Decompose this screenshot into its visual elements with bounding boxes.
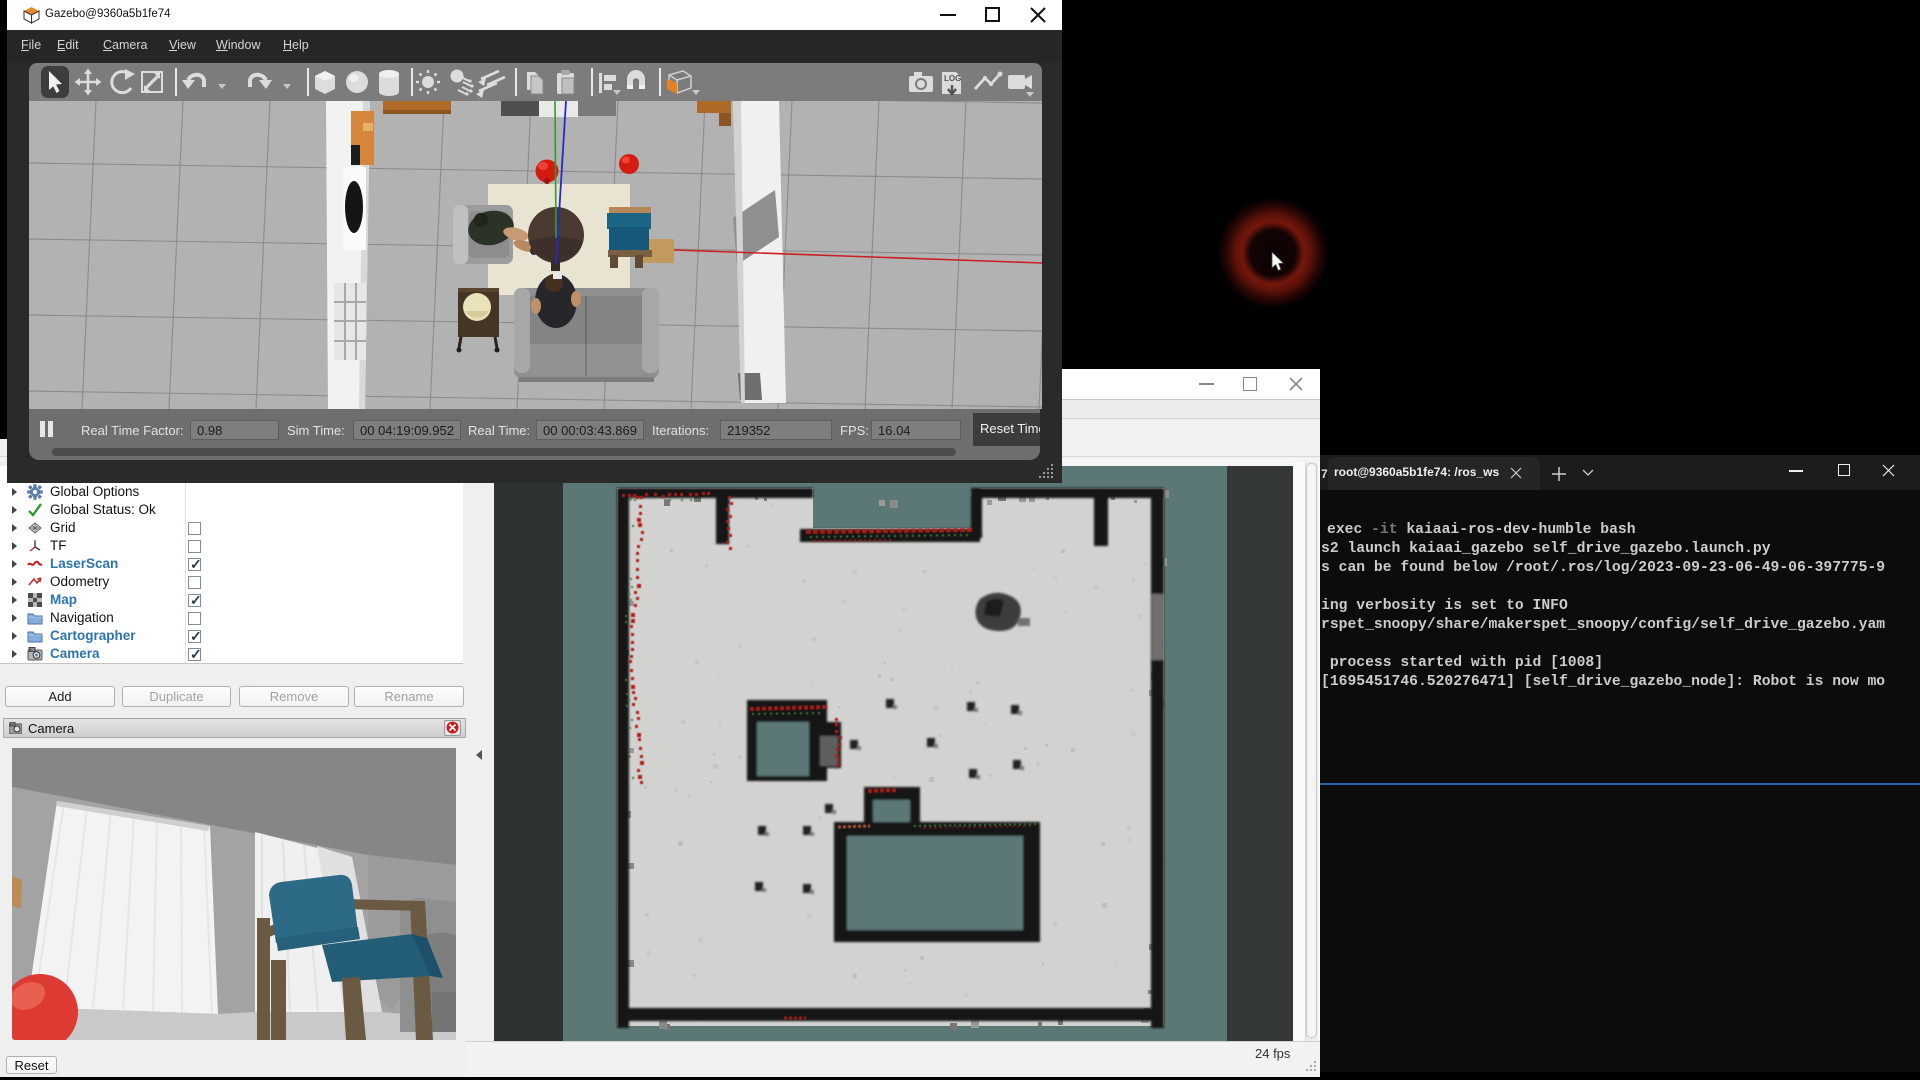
svg-text:LOG: LOG [944, 74, 961, 83]
